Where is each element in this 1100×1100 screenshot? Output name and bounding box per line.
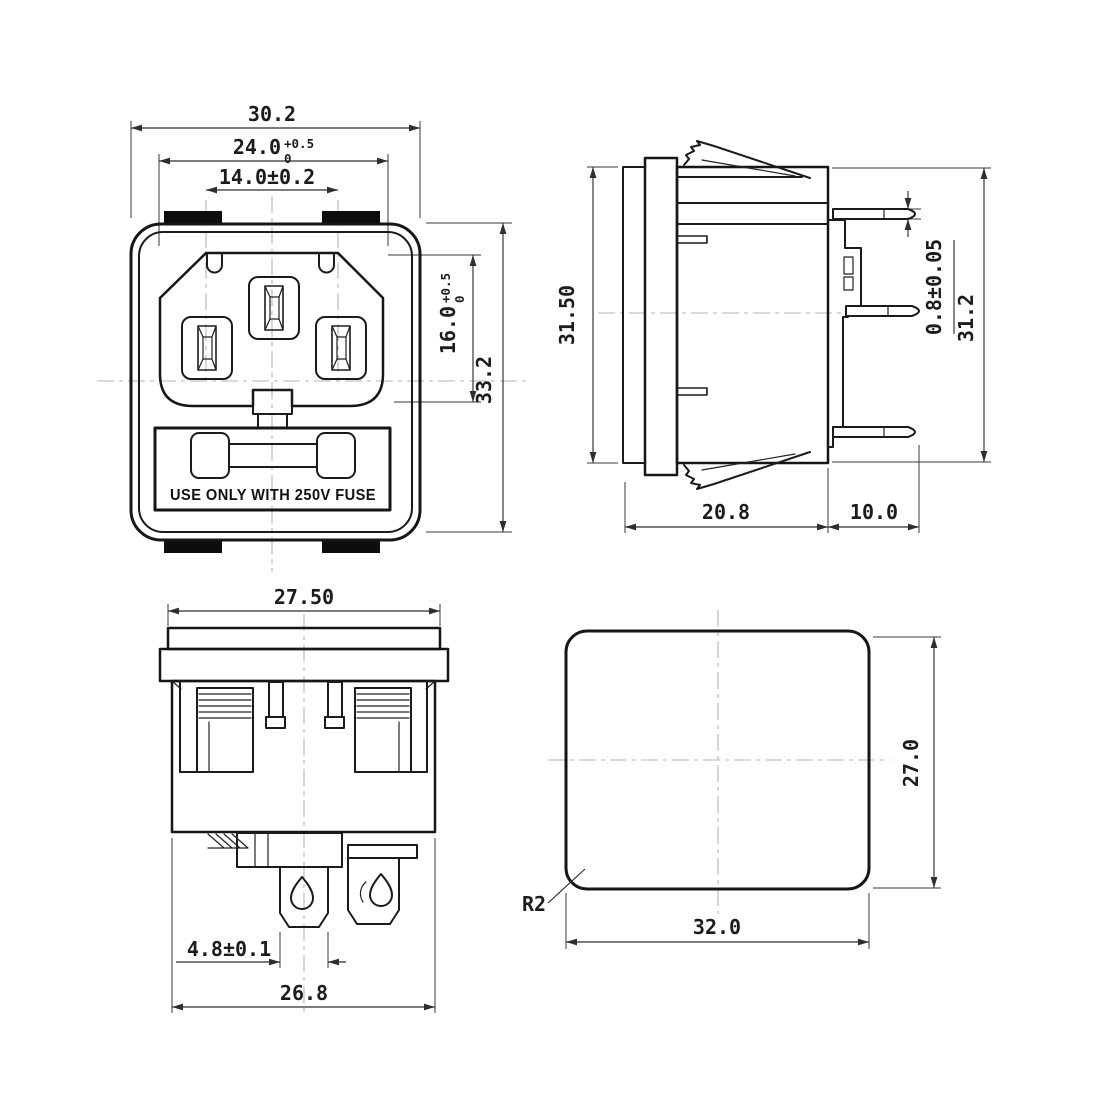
- dim-bottom-cap-width: 27.50: [274, 585, 334, 609]
- dim-cutout-width: 32.0: [693, 915, 741, 939]
- dim-side-body-depth: 20.8: [702, 500, 750, 524]
- terminal-hole-center: [291, 877, 313, 909]
- dim-front-opening-width: 24.0: [233, 135, 281, 159]
- panel-cutout-view: R2 32.0 27.0: [522, 610, 941, 949]
- side-housing: [677, 167, 828, 463]
- latch-block-left: [197, 688, 253, 772]
- fuse-cap-left: [191, 433, 229, 478]
- snap-latch-bottom: [684, 452, 810, 489]
- terminal-pin-top: [833, 209, 915, 219]
- dim-cutout-corner-radius: R2: [522, 892, 546, 916]
- bottom-view: 27.50 4.8±0.1 26.8: [160, 585, 448, 1014]
- dim-front-overall-height-group: 33.2: [472, 356, 496, 404]
- dim-side-pin-thickness: 0.8±0.05: [922, 239, 946, 335]
- dim-side-panel-height: 31.50: [555, 285, 579, 345]
- terminal-pin-middle: [846, 306, 919, 316]
- center-posts: [266, 682, 344, 728]
- dim-front-opening-height-tol-upper: +0.5: [438, 273, 453, 303]
- engineering-drawing-sheet: 30.2 24.0 +0.5 0 14.0±0.2 16.0 +0.5 0 33…: [0, 0, 1100, 1100]
- fuse-cap-right: [317, 433, 355, 478]
- pin-slot-earth: [249, 277, 299, 339]
- pin-slot-line: [316, 317, 366, 379]
- front-body: USE ONLY WITH 250V FUSE: [131, 211, 420, 553]
- fuse-warning-label: USE ONLY WITH 250V FUSE: [170, 487, 376, 504]
- dim-front-opening-height-group: 16.0 +0.5 0: [436, 273, 467, 354]
- dim-front-pin-pitch: 14.0±0.2: [219, 165, 315, 189]
- face-notch-right: [319, 253, 334, 273]
- side-rib-lower: [677, 388, 707, 395]
- dim-bottom-body-width: 26.8: [280, 981, 328, 1005]
- dim-front-overall-height: 33.2: [472, 356, 496, 404]
- dim-front-opening-height-tol-lower: 0: [452, 295, 467, 303]
- cutout-dimensions: R2 32.0 27.0: [522, 637, 941, 949]
- dim-bottom-terminal-width: 4.8±0.1: [187, 937, 271, 961]
- solder-terminal-right: [348, 858, 399, 924]
- rear-terminal-step-mid: [833, 317, 848, 427]
- terminal-pin-bottom: [833, 427, 915, 437]
- bottom-base-details: [208, 833, 417, 867]
- side-flange: [645, 158, 677, 475]
- side-rib-upper: [677, 236, 707, 243]
- dim-front-opening-height: 16.0: [436, 306, 460, 354]
- face-notch-left: [207, 253, 222, 273]
- side-dimensions: 31.50 20.8 10.0 0.8±0.05 31.2: [555, 167, 991, 533]
- side-face-cap: [623, 167, 645, 463]
- side-view: 31.50 20.8 10.0 0.8±0.05 31.2: [555, 141, 991, 533]
- dim-front-overall-width: 30.2: [248, 102, 296, 126]
- latch-block-right: [355, 688, 411, 772]
- snap-latch-top: [684, 141, 810, 178]
- front-view: 30.2 24.0 +0.5 0 14.0±0.2 16.0 +0.5 0 33…: [97, 102, 527, 572]
- side-body: [623, 141, 919, 489]
- pin-slot-neutral: [182, 317, 232, 379]
- dim-cutout-height: 27.0: [899, 739, 923, 787]
- dim-side-rear-height: 31.2: [954, 294, 978, 342]
- dim-side-pin-length: 10.0: [850, 500, 898, 524]
- terminal-hole-right: [370, 874, 392, 906]
- dim-front-opening-width-tol-lower: 0: [284, 151, 292, 166]
- drawing-canvas: 30.2 24.0 +0.5 0 14.0±0.2 16.0 +0.5 0 33…: [0, 0, 1100, 1100]
- dim-front-opening-width-tol-upper: +0.5: [284, 136, 314, 151]
